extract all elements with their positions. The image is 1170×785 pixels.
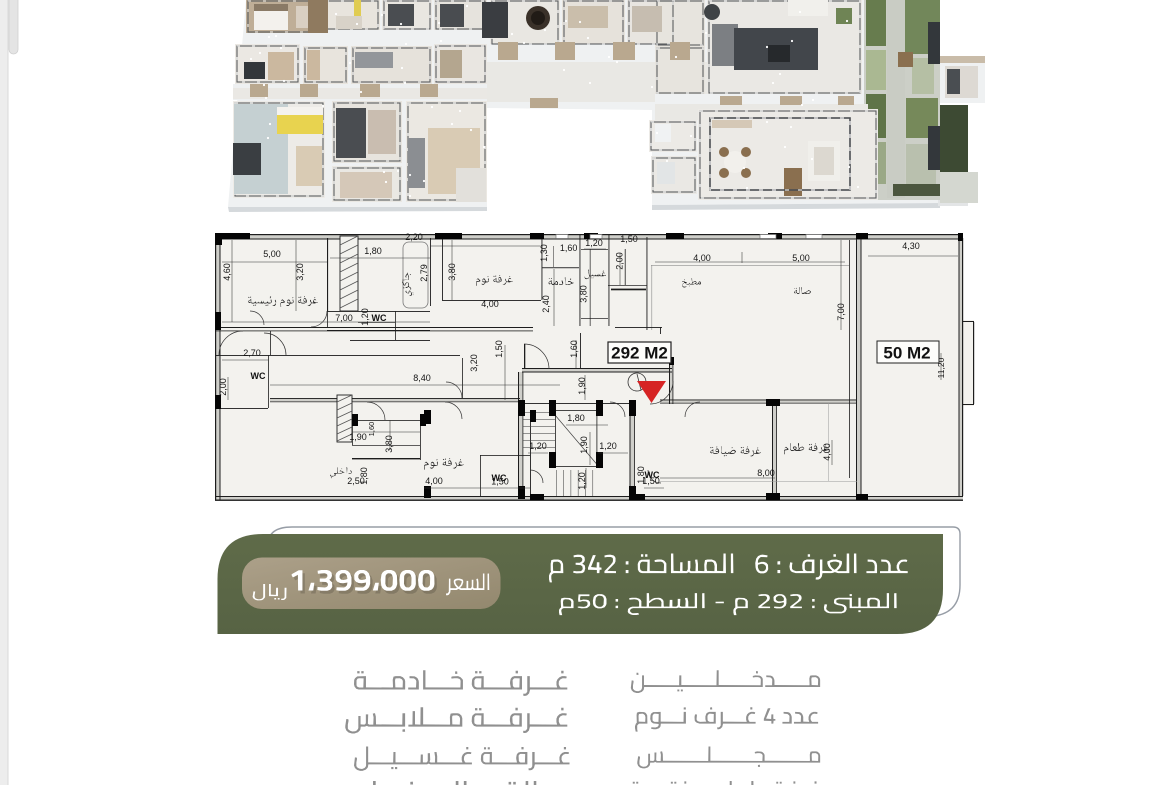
svg-text:1,20: 1,20	[599, 441, 617, 451]
svg-text:2,70: 2,70	[243, 348, 261, 358]
svg-text:2,50: 2,50	[347, 476, 365, 486]
svg-text:3,20: 3,20	[295, 263, 305, 281]
svg-text:1,50: 1,50	[494, 340, 504, 358]
svg-text:2,00: 2,00	[218, 378, 228, 396]
svg-text:WC: WC	[372, 313, 387, 323]
svg-text:7,00: 7,00	[335, 313, 353, 323]
svg-text:2,79: 2,79	[419, 264, 429, 282]
svg-text:3,20: 3,20	[469, 354, 479, 372]
svg-text:4,00: 4,00	[693, 253, 711, 263]
svg-text:WC: WC	[645, 470, 660, 480]
svg-text:5,00: 5,00	[792, 253, 810, 263]
svg-text:3,80: 3,80	[384, 435, 394, 453]
svg-text:1,90: 1,90	[349, 432, 367, 442]
svg-text:1,20: 1,20	[360, 308, 370, 326]
svg-text:1,90: 1,90	[577, 377, 587, 395]
svg-text:1,90: 1,90	[579, 436, 589, 454]
svg-text:1,50: 1,50	[620, 234, 638, 244]
svg-text:1,20: 1,20	[529, 441, 547, 451]
svg-text:2,20: 2,20	[405, 232, 423, 242]
svg-text:3,80: 3,80	[579, 285, 589, 303]
svg-text:1,30: 1,30	[539, 244, 549, 262]
svg-text:4,60: 4,60	[222, 263, 232, 281]
svg-text:1,60: 1,60	[560, 243, 578, 253]
svg-text:4,00: 4,00	[481, 299, 499, 309]
svg-text:1,80: 1,80	[364, 246, 382, 256]
svg-text:1,80: 1,80	[567, 413, 585, 423]
svg-text:2,00: 2,00	[615, 252, 625, 270]
svg-text:8,00: 8,00	[757, 468, 775, 478]
svg-text:4,00: 4,00	[425, 476, 443, 486]
svg-text:4,30: 4,30	[902, 241, 920, 251]
svg-text:1,20: 1,20	[585, 238, 603, 248]
svg-text:4,00: 4,00	[822, 443, 832, 461]
svg-text:1,60: 1,60	[367, 422, 376, 437]
svg-text:WC: WC	[251, 371, 266, 381]
svg-text:7,00: 7,00	[836, 303, 846, 321]
svg-text:3,80: 3,80	[447, 263, 457, 281]
svg-text:8,40: 8,40	[413, 373, 431, 383]
svg-text:5,00: 5,00	[263, 249, 281, 259]
svg-text:WC: WC	[492, 473, 507, 483]
svg-text:1,20: 1,20	[577, 472, 587, 490]
svg-text:2,40: 2,40	[541, 295, 551, 313]
svg-text:50 M2: 50 M2	[883, 344, 930, 363]
svg-text:292 M2: 292 M2	[611, 344, 668, 363]
svg-text:1,60: 1,60	[569, 340, 579, 358]
